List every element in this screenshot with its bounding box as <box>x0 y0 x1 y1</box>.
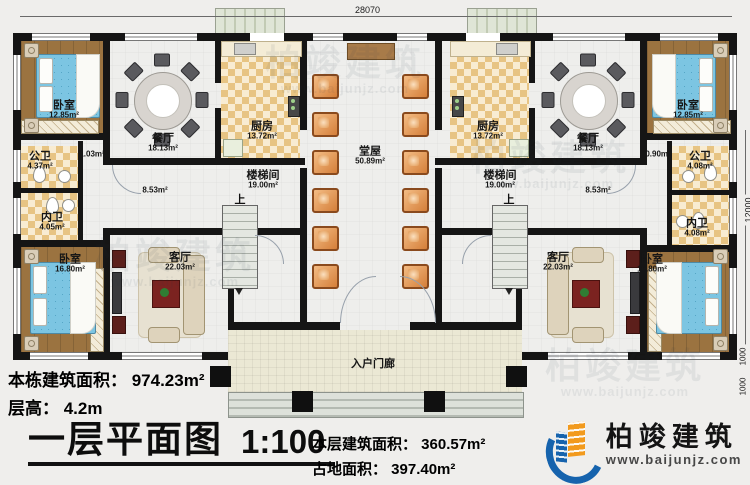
dining-chair <box>116 92 129 108</box>
logo-building-blue <box>556 431 567 462</box>
window <box>13 150 21 182</box>
wall <box>13 133 110 140</box>
label-bedroom-bottom-left: 卧室 16.80m² <box>55 253 85 274</box>
wall <box>435 228 647 235</box>
label-bedroom-bottom-right: 卧室 16.80m² <box>637 253 667 274</box>
nightstand <box>713 118 728 133</box>
hall-chair <box>402 74 429 99</box>
tv-cabinet <box>112 316 126 334</box>
dimension-line-right <box>745 130 746 360</box>
label-private-bath-left: 内卫 4.05m² <box>39 211 64 232</box>
pillow <box>699 58 713 84</box>
bed-blanket <box>76 54 100 118</box>
wall <box>435 168 442 330</box>
nightstand <box>24 336 39 351</box>
stat-total-building-area: 本栋建筑面积： 974.23m² <box>8 366 205 391</box>
wall <box>103 33 110 165</box>
window <box>13 55 21 110</box>
window <box>122 352 202 360</box>
exterior-stair-left <box>215 8 285 36</box>
label-up-right: 上 <box>504 191 515 207</box>
fridge <box>223 139 243 157</box>
plant <box>580 288 589 297</box>
floor-plan-canvas: 28070 12000 1000 1000 <box>0 0 750 485</box>
dining-chair <box>580 54 596 67</box>
window <box>30 352 88 360</box>
window <box>397 33 427 41</box>
kitchen-sink <box>234 43 256 55</box>
window <box>662 352 720 360</box>
wall <box>410 322 522 330</box>
wall <box>13 33 737 41</box>
wall <box>435 33 442 130</box>
wall <box>435 158 647 165</box>
stat-this-floor-area: 本层建筑面积： 360.57m² <box>312 433 485 454</box>
company-logo-icon <box>546 416 598 474</box>
label-corridor-left: 8.53m² <box>142 186 167 195</box>
wall <box>103 228 305 235</box>
label-hall: 堂屋 50.89m² <box>355 145 385 166</box>
window <box>13 268 21 334</box>
wall <box>103 158 305 165</box>
back-door-opening <box>250 33 284 41</box>
wall <box>103 228 110 360</box>
window <box>548 352 628 360</box>
armchair <box>148 327 180 343</box>
round-dining-table <box>560 72 618 130</box>
dining-chair <box>154 54 170 67</box>
label-entry-porch: 入户门廊 <box>351 358 395 370</box>
label-kitchen-right: 厨房 13.72m² <box>473 120 503 141</box>
plant <box>160 288 169 297</box>
nightstand <box>713 249 728 264</box>
nightstand <box>713 43 728 58</box>
dining-chair <box>622 92 635 108</box>
fridge <box>509 139 529 157</box>
dimension-right-b1: 1000 <box>738 345 747 369</box>
hall-chair <box>312 74 339 99</box>
hall-chair <box>402 188 429 213</box>
dimension-right-label: 12000 <box>744 194 750 225</box>
pillow <box>33 266 47 294</box>
stove <box>452 96 464 117</box>
window <box>660 33 718 41</box>
round-dining-table <box>134 72 192 130</box>
window <box>32 33 90 41</box>
exterior-stair-right <box>467 8 537 36</box>
wall <box>529 108 535 165</box>
label-public-bath-left: 公卫 4.37m² <box>27 150 52 171</box>
hall-chair <box>402 226 429 251</box>
label-corridor-left-small: 1.03m² <box>79 150 104 159</box>
wall <box>13 240 105 247</box>
hall-chair <box>312 188 339 213</box>
stat-floor-height: 层高： 4.2m <box>8 394 102 419</box>
tv-cabinet <box>626 316 640 334</box>
nightstand <box>713 336 728 351</box>
wall <box>228 322 340 330</box>
armchair <box>572 247 604 263</box>
label-bedroom-top-right: 卧室 12.85m² <box>673 99 703 120</box>
tv-cabinet <box>112 250 126 268</box>
wall <box>13 188 78 193</box>
window <box>313 33 343 41</box>
dimension-top-label: 28070 <box>352 5 383 15</box>
staircase-left[interactable] <box>222 205 258 289</box>
porch-column <box>424 391 445 412</box>
dining-chair <box>542 92 555 108</box>
window <box>125 33 197 41</box>
hall-chair <box>402 150 429 175</box>
bath-sink <box>62 199 75 212</box>
stove <box>288 96 300 117</box>
label-up-left: 上 <box>235 191 246 207</box>
porch-column <box>292 391 313 412</box>
kitchen-counter <box>450 41 531 57</box>
window <box>729 150 737 182</box>
porch-steps <box>228 392 524 418</box>
plan-title: 一层平面图 1:100 <box>28 421 335 466</box>
wall <box>672 190 737 195</box>
pillow <box>705 266 719 294</box>
wall <box>300 168 307 330</box>
label-kitchen-left: 厨房 13.72m² <box>247 120 277 141</box>
window <box>729 198 737 234</box>
hall-chair <box>402 112 429 137</box>
porch-column <box>506 366 527 387</box>
armchair <box>572 327 604 343</box>
label-corridor-right-small: 0.90m² <box>645 150 670 159</box>
label-living-left: 客厅 22.03m² <box>165 251 195 272</box>
label-dining-right: 餐厅 18.13m² <box>573 132 603 153</box>
label-stairwell-right: 楼梯间 19.00m² <box>484 169 517 190</box>
stair-arrow <box>235 288 243 295</box>
dimension-right-b2: 1000 <box>738 375 747 399</box>
stat-footprint-area: 占地面积： 397.40m² <box>312 458 455 479</box>
window <box>729 268 737 334</box>
tv <box>112 272 122 314</box>
staircase-right[interactable] <box>492 205 528 289</box>
logo-building-orange <box>568 421 585 457</box>
hall-chair <box>312 264 339 289</box>
pillow <box>39 58 53 84</box>
wall <box>640 133 737 140</box>
window <box>729 55 737 110</box>
hall-chair <box>312 150 339 175</box>
back-door-opening <box>466 33 500 41</box>
window <box>13 198 21 234</box>
tv <box>630 272 640 314</box>
nightstand <box>24 249 39 264</box>
plan-title-text: 一层平面图 <box>28 421 223 458</box>
bath-sink <box>58 170 71 183</box>
wall <box>640 33 647 165</box>
label-bedroom-top-left: 卧室 12.85m² <box>49 99 79 120</box>
porch-column <box>210 366 231 387</box>
company-name: 柏竣建筑 <box>606 423 742 451</box>
dining-chair <box>196 92 209 108</box>
hall-chair <box>312 226 339 251</box>
bath-sink <box>682 170 695 183</box>
window <box>553 33 625 41</box>
nightstand <box>24 118 39 133</box>
company-logo[interactable]: 柏竣建筑 www.baijunjz.com <box>546 416 742 474</box>
pillow <box>33 298 47 326</box>
nightstand <box>24 43 39 58</box>
wall <box>640 228 647 360</box>
label-corridor-right: 8.53m² <box>585 186 610 195</box>
label-stairwell-left: 楼梯间 19.00m² <box>247 169 280 190</box>
label-private-bath-right: 内卫 4.08m² <box>684 217 709 238</box>
hall-chair <box>312 112 339 137</box>
company-url[interactable]: www.baijunjz.com <box>606 452 742 467</box>
company-logo-text: 柏竣建筑 www.baijunjz.com <box>606 423 742 466</box>
kitchen-sink <box>496 43 518 55</box>
label-living-right: 客厅 22.03m² <box>543 251 573 272</box>
wall <box>215 108 221 165</box>
altar-table <box>347 43 395 60</box>
pillow <box>705 298 719 326</box>
stair-arrow <box>505 288 513 295</box>
label-public-bath-right: 公卫 4.08m² <box>687 150 712 171</box>
dimension-line-top <box>20 16 732 17</box>
label-dining-left: 餐厅 18.13m² <box>148 132 178 153</box>
